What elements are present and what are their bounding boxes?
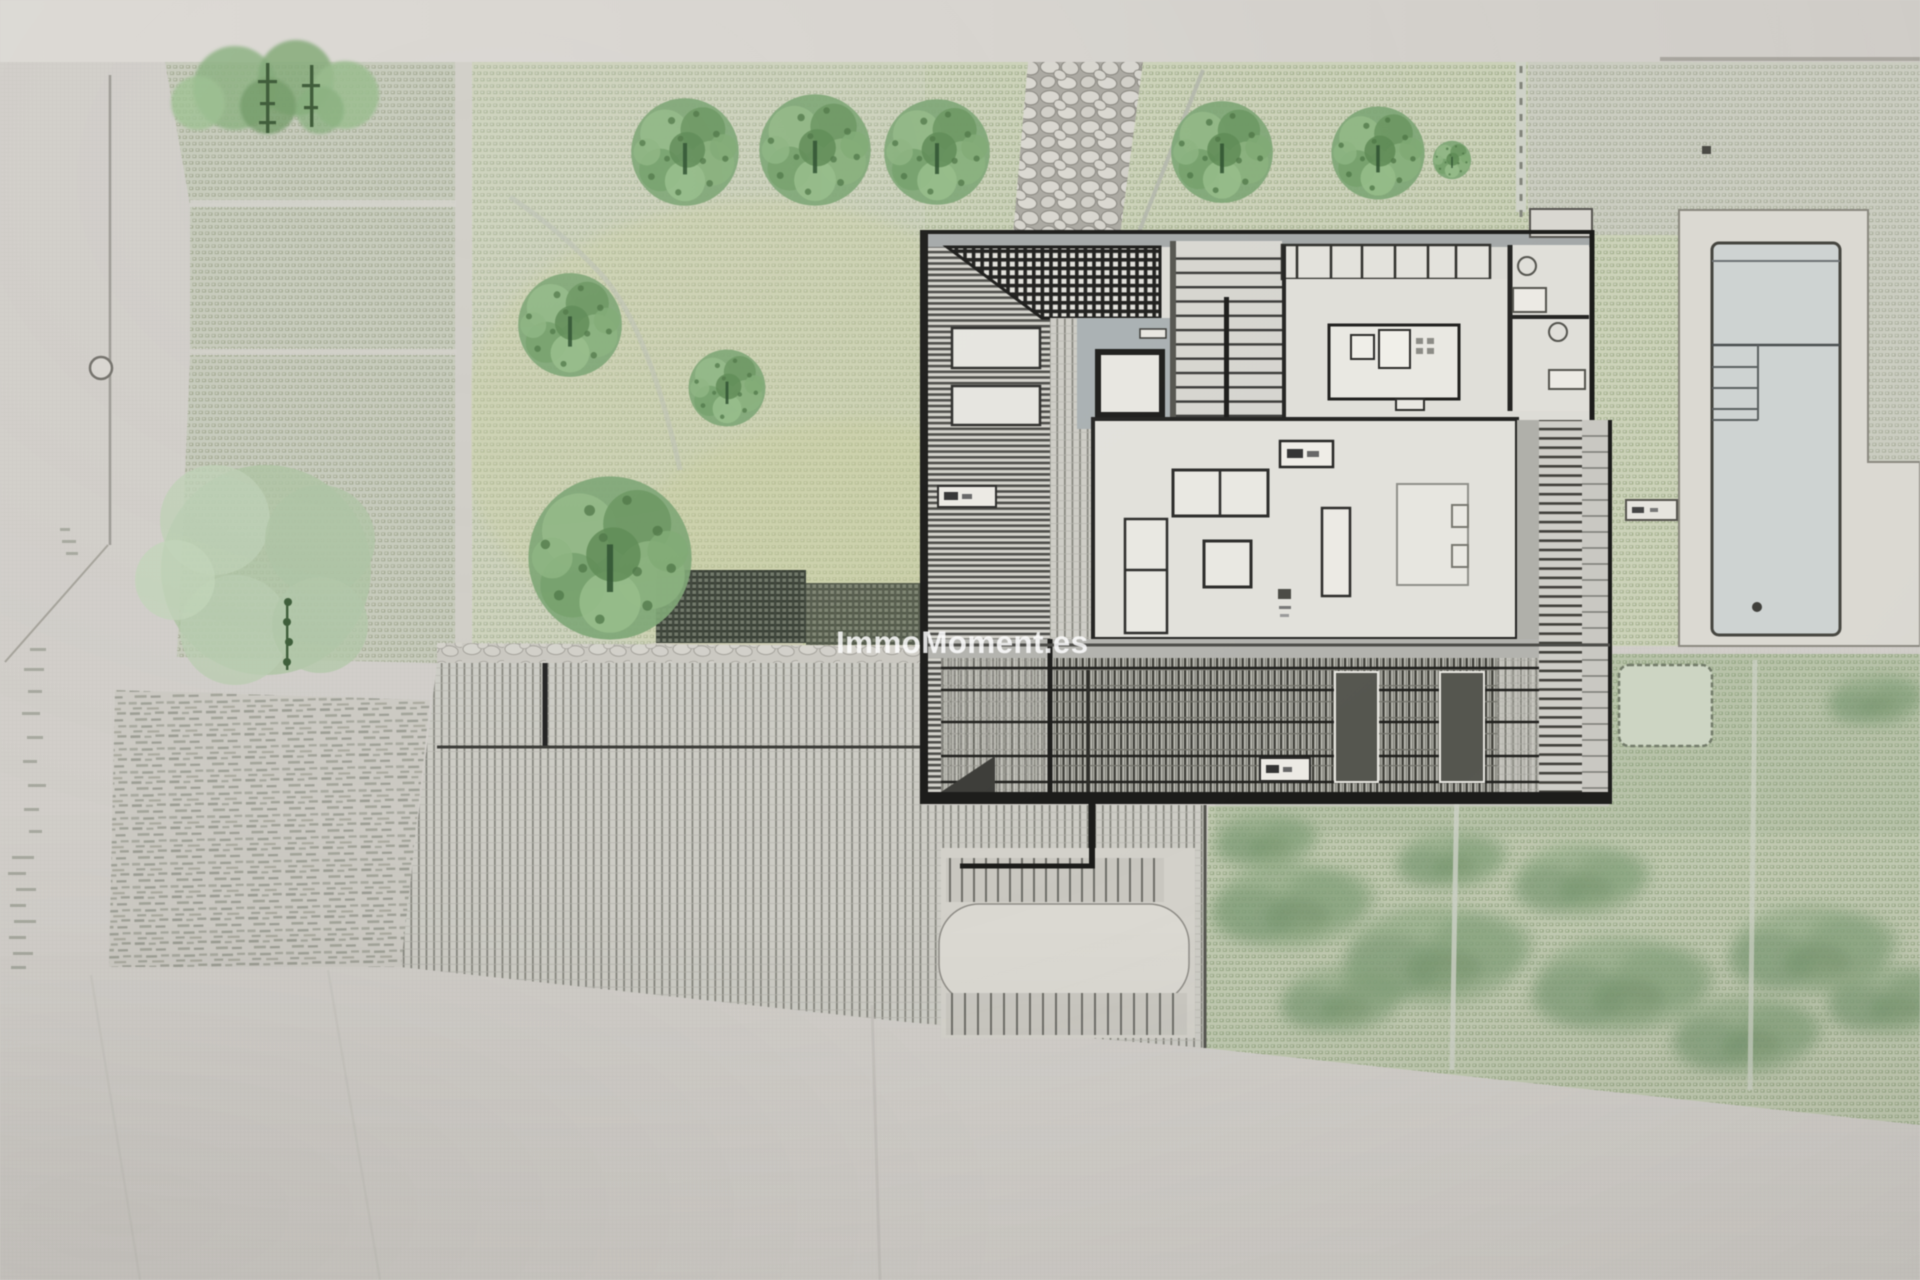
svg-text:ImmoMoment.es: ImmoMoment.es: [836, 624, 1088, 660]
